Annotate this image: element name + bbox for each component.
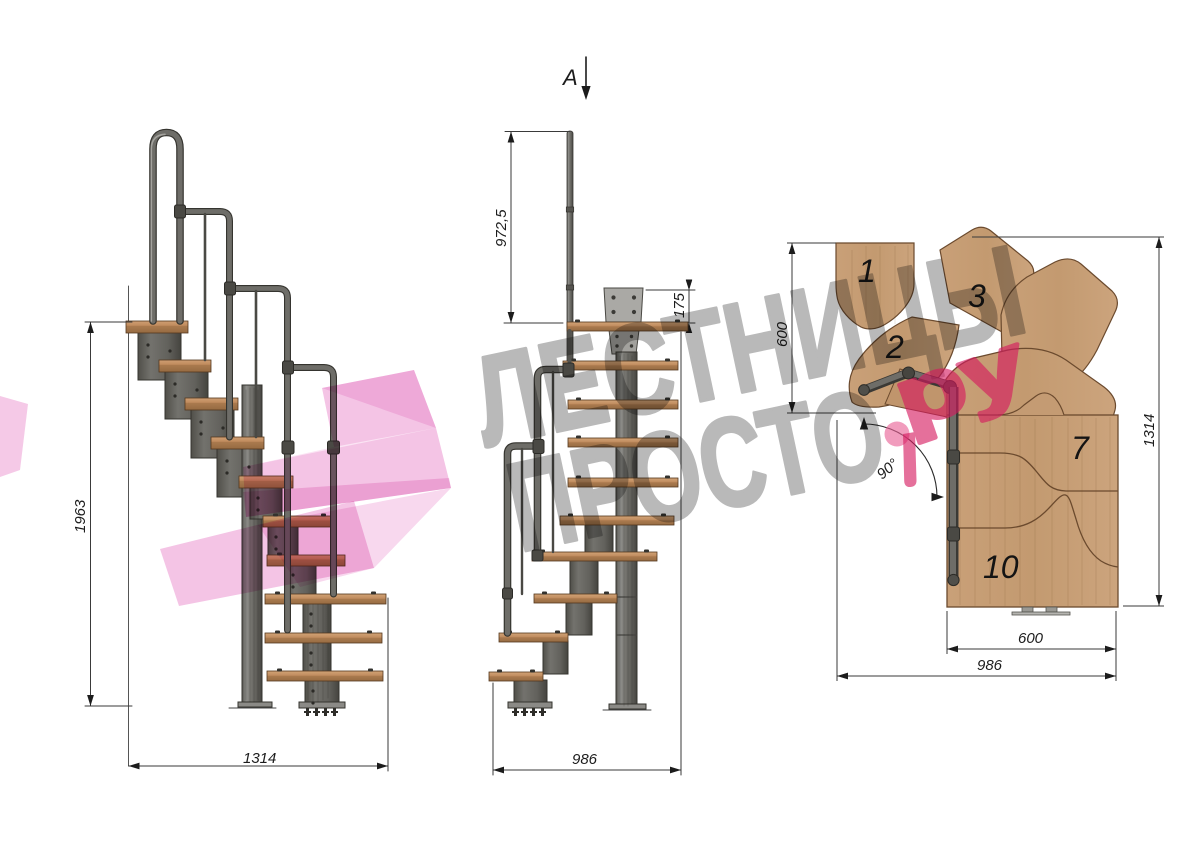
svg-text:986: 986: [977, 657, 1003, 674]
svg-text:1314: 1314: [1141, 414, 1158, 447]
svg-text:972,5: 972,5: [493, 209, 510, 247]
svg-text:A: A: [561, 65, 578, 90]
svg-text:600: 600: [1018, 630, 1044, 647]
svg-text:10: 10: [983, 549, 1019, 585]
svg-text:1963: 1963: [72, 499, 89, 533]
svg-text:986: 986: [572, 751, 598, 768]
svg-text:7: 7: [1071, 430, 1090, 466]
svg-text:1314: 1314: [243, 750, 276, 767]
